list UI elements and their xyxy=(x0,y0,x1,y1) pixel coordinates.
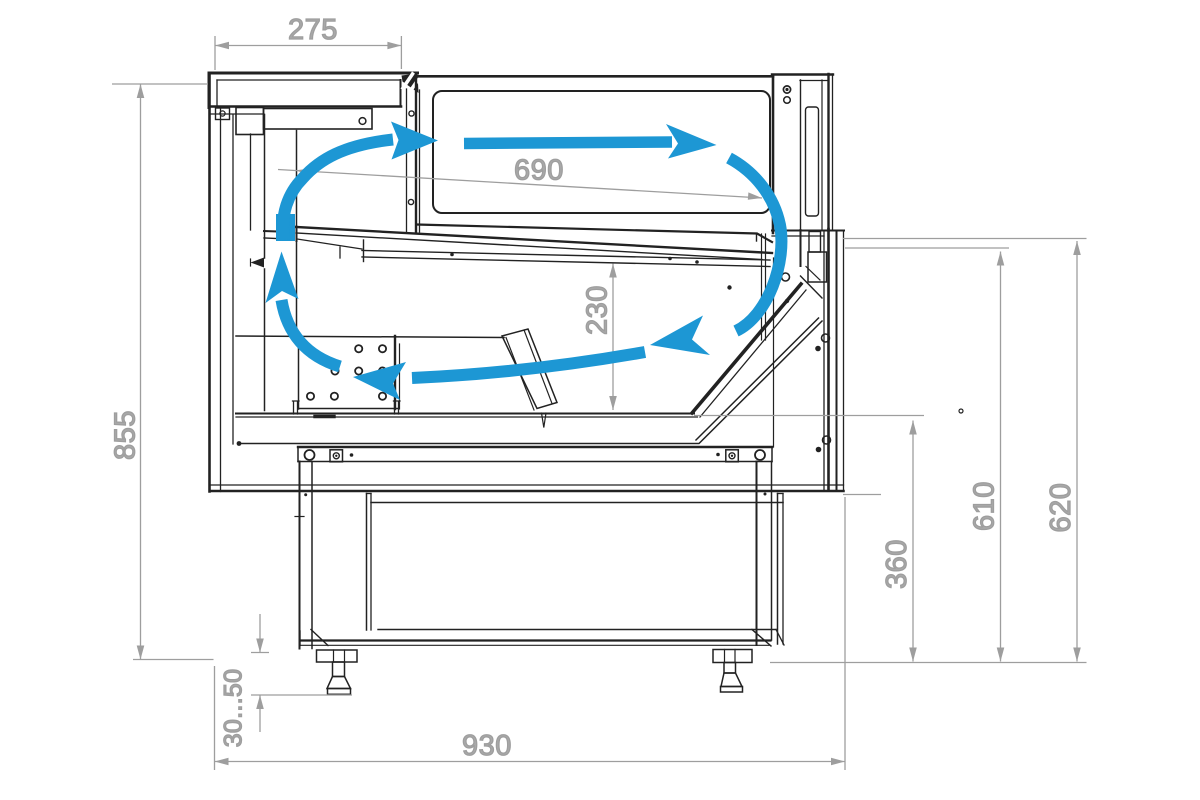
svg-text:360: 360 xyxy=(881,539,913,589)
svg-text:230: 230 xyxy=(582,285,614,335)
svg-text:610: 610 xyxy=(969,481,1001,531)
svg-text:275: 275 xyxy=(288,14,338,46)
svg-text:930: 930 xyxy=(462,730,512,762)
svg-text:30...50: 30...50 xyxy=(220,669,248,748)
svg-text:620: 620 xyxy=(1045,483,1077,533)
svg-text:690: 690 xyxy=(514,155,564,187)
svg-text:855: 855 xyxy=(110,410,142,460)
